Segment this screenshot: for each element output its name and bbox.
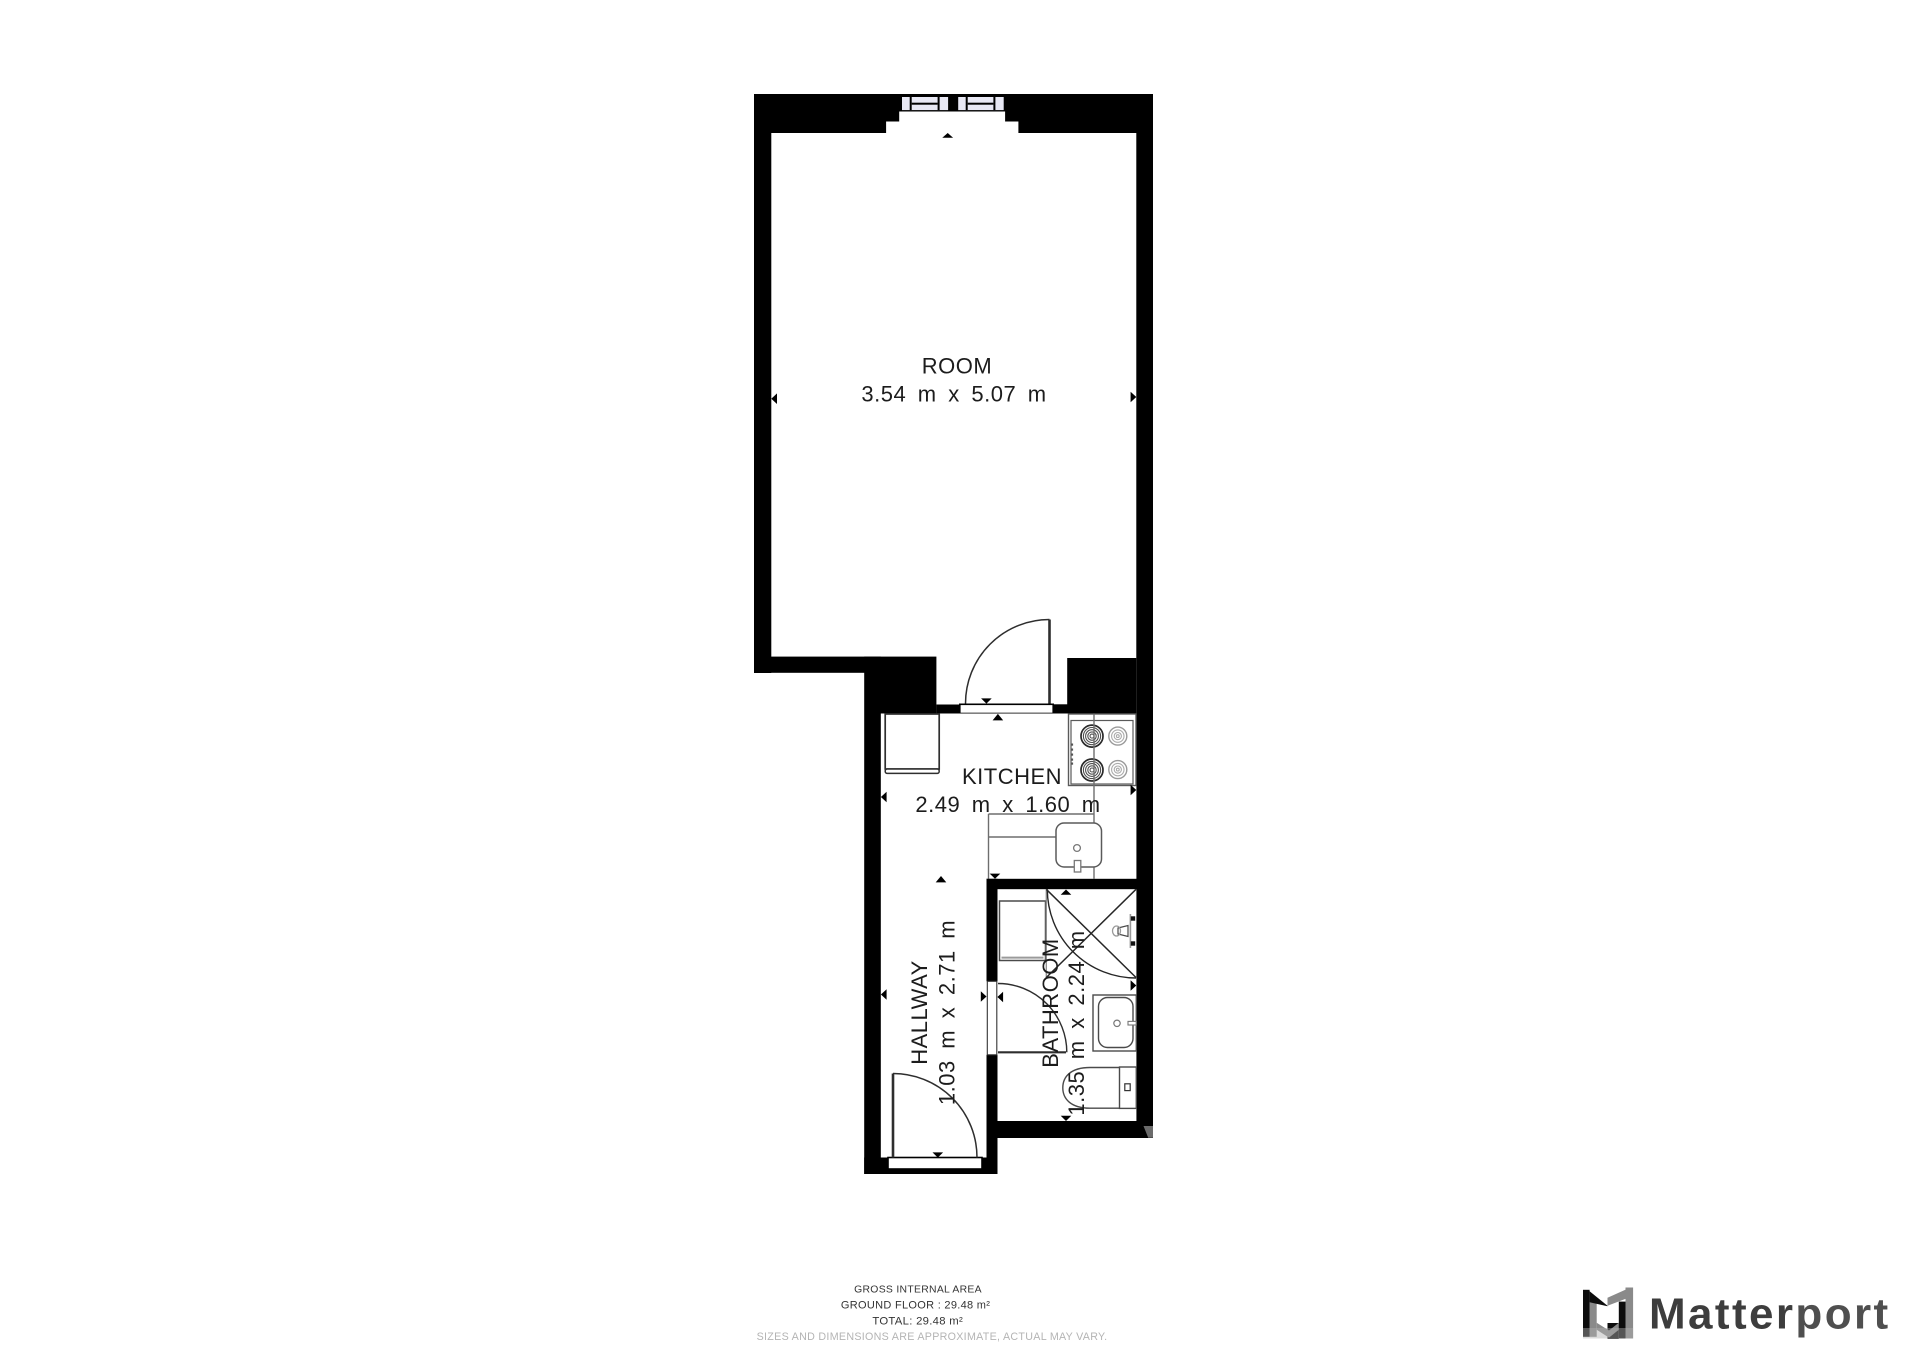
svg-text:1.03 m x 2.71 m: 1.03 m x 2.71 m (935, 920, 960, 1105)
svg-text:ROOM: ROOM (922, 354, 992, 379)
svg-text:TOTAL: 29.48 m²: TOTAL: 29.48 m² (872, 1316, 963, 1328)
svg-text:KITCHEN: KITCHEN (962, 764, 1062, 789)
svg-text:Matterport: Matterport (1649, 1289, 1891, 1338)
svg-text:BATHROOM: BATHROOM (1038, 938, 1063, 1067)
svg-text:GROSS INTERNAL AREA: GROSS INTERNAL AREA (854, 1285, 982, 1296)
svg-text:SIZES AND DIMENSIONS ARE APPRO: SIZES AND DIMENSIONS ARE APPROXIMATE, AC… (757, 1331, 1108, 1343)
svg-text:2.49 m x 1.60 m: 2.49 m x 1.60 m (915, 792, 1100, 817)
svg-text:1.35 m x 2.24 m: 1.35 m x 2.24 m (1064, 930, 1089, 1115)
svg-text:HALLWAY: HALLWAY (907, 960, 932, 1065)
svg-text:3.54 m x 5.07 m: 3.54 m x 5.07 m (861, 382, 1046, 407)
svg-text:GROUND FLOOR : 29.48 m²: GROUND FLOOR : 29.48 m² (841, 1300, 990, 1312)
